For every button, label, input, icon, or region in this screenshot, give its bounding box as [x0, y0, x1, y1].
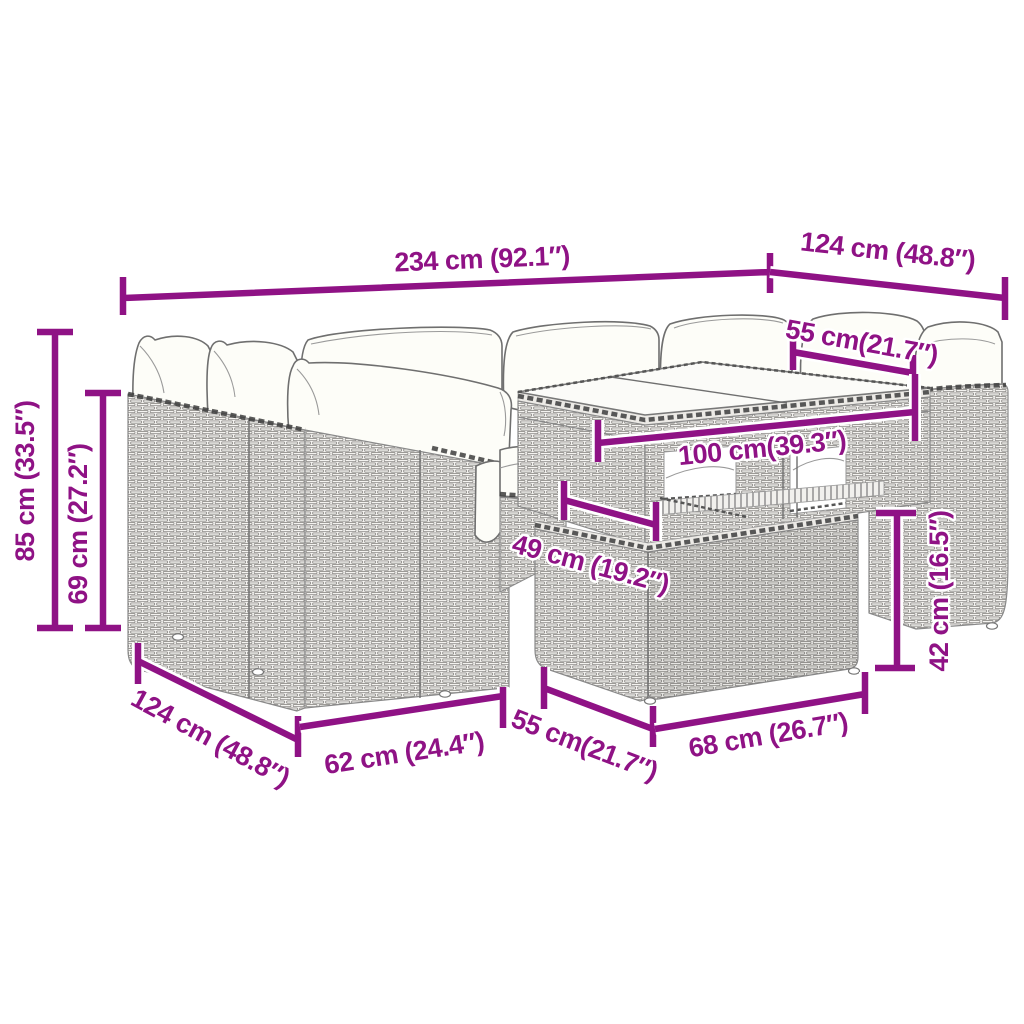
product-dimension-diagram: 234 cm (92.1″) 124 cm (48.8″) 55 cm(21.7…: [0, 0, 1024, 1024]
dim-overall-width-label: 234 cm (92.1″): [394, 240, 571, 277]
diagram-canvas: 234 cm (92.1″) 124 cm (48.8″) 55 cm(21.7…: [0, 0, 1024, 1024]
dim-overall-height-label: 85 cm (33.5″): [10, 400, 40, 561]
dim-ottoman-depth-label: 55 cm(21.7″): [507, 703, 662, 786]
dim-overall-depth-right-label: 124 cm (48.8″): [799, 226, 977, 275]
dim-ottoman-height-label: 42 cm (16.5″): [924, 510, 954, 671]
foot: [987, 623, 998, 629]
dim-overall-width: 234 cm (92.1″): [123, 240, 770, 315]
dim-backrest-height: 69 cm (27.2″): [63, 393, 121, 628]
foot: [253, 669, 264, 675]
dim-module-width-label: 62 cm (24.4″): [322, 726, 486, 780]
foot: [645, 698, 656, 704]
foot: [440, 691, 451, 697]
dim-backrest-height-label: 69 cm (27.2″): [63, 443, 93, 604]
foot: [849, 668, 860, 674]
dim-overall-depth-right: 124 cm (48.8″): [770, 226, 1005, 320]
foot: [173, 634, 184, 640]
